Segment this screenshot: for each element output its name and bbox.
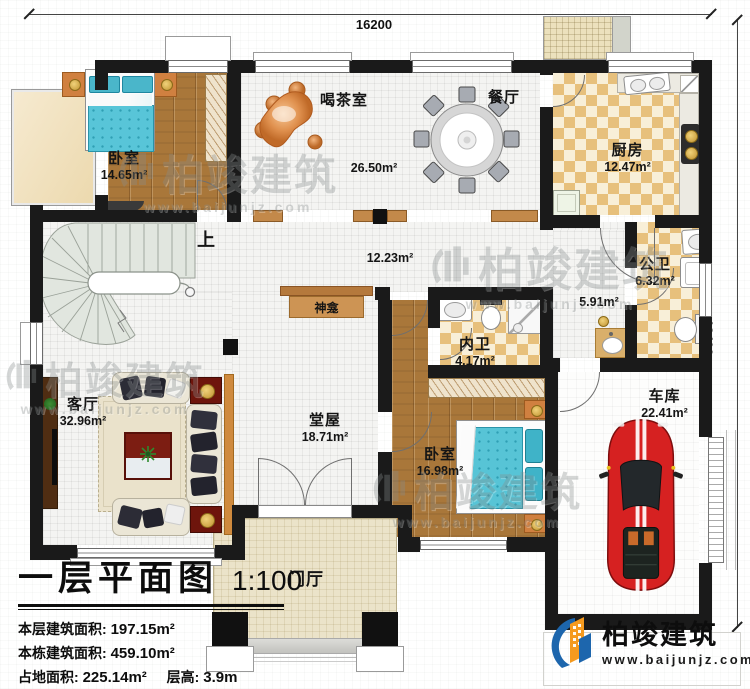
room-label-bedroom1: 卧室 14.65m² xyxy=(84,150,164,183)
right-dimension-line xyxy=(737,20,738,628)
stair-up-label: 上 xyxy=(192,230,220,252)
top-dimension-line xyxy=(28,14,712,15)
mattress xyxy=(88,105,154,152)
brand-logo-icon xyxy=(548,612,594,677)
stat-row: 本层建筑面积: 197.15m² xyxy=(18,619,328,639)
room-label-kitchen: 厨房 12.47m² xyxy=(585,142,670,175)
title-block: 一层平面图 1:100 本层建筑面积: 197.15m² 本栋建筑面积: 459… xyxy=(18,550,328,689)
room-label-tea: 喝茶室 xyxy=(300,92,388,110)
main-hall-floor xyxy=(232,292,378,505)
wall xyxy=(350,60,412,73)
chimney-hatch xyxy=(544,17,612,59)
area-label-tea: 26.50m² xyxy=(334,161,414,176)
floor-plan: 16200 13400 xyxy=(0,0,750,689)
wall xyxy=(30,365,43,560)
wall xyxy=(512,60,608,73)
wall xyxy=(375,287,390,300)
title-rule xyxy=(18,604,284,607)
wall xyxy=(428,287,553,300)
nightstand xyxy=(524,400,546,419)
stat-row: 占地面积: 225.14m² 层高: 3.9m xyxy=(18,667,328,687)
brand-name: 柏竣建筑 xyxy=(602,622,750,649)
door-leaf xyxy=(351,458,352,505)
wall xyxy=(428,300,440,328)
garage-door-track xyxy=(726,430,736,570)
wall xyxy=(378,300,392,412)
corner-cabinet xyxy=(680,75,699,93)
fridge-icon xyxy=(553,190,580,216)
brand-website: www.baijunjz.com xyxy=(602,652,750,667)
half-wall-cabinet xyxy=(387,210,407,222)
door-leaf xyxy=(197,180,198,210)
wall xyxy=(227,60,241,222)
room-label-main-hall: 堂屋 18.71m² xyxy=(283,412,367,445)
door-leaf xyxy=(258,458,259,505)
wall xyxy=(692,60,712,73)
window xyxy=(699,263,712,317)
car xyxy=(594,412,688,598)
nightstand xyxy=(62,72,85,97)
half-wall-cabinet xyxy=(491,210,538,222)
window xyxy=(412,60,512,73)
wall xyxy=(95,60,108,90)
tea-table xyxy=(240,78,330,158)
room-label-inner-bath: 内卫 4.17m² xyxy=(440,336,510,369)
column xyxy=(373,209,387,224)
room-label-dining: 餐厅 xyxy=(470,89,538,107)
top-dimension-label: 16200 xyxy=(334,17,414,32)
room-label-public-bath: 公卫 6.32m² xyxy=(620,256,690,289)
staircase xyxy=(40,222,200,347)
title-rule xyxy=(18,609,284,610)
wall xyxy=(378,452,392,505)
wall xyxy=(545,372,558,614)
garage-door xyxy=(708,437,724,563)
wall xyxy=(507,537,545,552)
window xyxy=(30,322,43,365)
wall xyxy=(699,73,712,263)
nightstand xyxy=(524,514,546,533)
window xyxy=(168,60,228,73)
door-threshold xyxy=(258,505,352,518)
half-wall-cabinet xyxy=(353,210,373,222)
wall xyxy=(600,358,712,372)
room-label-bedroom2: 卧室 16.98m² xyxy=(398,446,482,479)
half-wall-cabinet xyxy=(253,210,283,222)
window xyxy=(608,60,692,73)
pillow xyxy=(525,429,543,463)
pillow xyxy=(122,76,153,93)
wardrobe xyxy=(205,74,227,162)
window xyxy=(255,60,350,73)
end-table xyxy=(190,377,222,404)
room-label-living: 客厅 32.96m² xyxy=(43,396,123,429)
plan-title: 一层平面图 xyxy=(18,550,218,601)
closet xyxy=(428,378,545,398)
wall xyxy=(30,205,43,322)
vanity-sink-icon xyxy=(595,328,626,358)
wall xyxy=(625,305,637,363)
area-label-corridor: 5.91m² xyxy=(560,295,638,310)
nightstand xyxy=(154,72,177,97)
wall xyxy=(540,215,600,228)
floor-drain-icon xyxy=(598,316,609,327)
end-table xyxy=(190,506,222,533)
toilet-icon xyxy=(477,295,505,332)
column xyxy=(223,339,238,355)
sofa xyxy=(112,372,190,404)
area-label-hallway: 12.23m² xyxy=(350,251,430,266)
room-label-garage: 车库 22.41m² xyxy=(622,388,707,421)
plan-scale: 1:100 xyxy=(232,565,302,597)
wall xyxy=(540,60,553,75)
sofa xyxy=(112,498,190,536)
wall xyxy=(352,505,412,518)
porch-column xyxy=(362,612,398,646)
shrine-label: 神龛 xyxy=(314,301,338,315)
shrine-table: 神龛 xyxy=(289,296,364,318)
sofa xyxy=(186,404,222,504)
pillow xyxy=(525,467,543,501)
shrine-table-top xyxy=(280,286,373,296)
wall xyxy=(540,107,553,230)
window xyxy=(420,540,507,550)
brand-logo: 柏竣建筑 www.baijunjz.com xyxy=(548,612,750,677)
window-box xyxy=(165,36,231,61)
wall xyxy=(30,210,197,222)
stove-icon xyxy=(681,124,700,164)
column-base xyxy=(356,646,404,672)
plan-stats: 本层建筑面积: 197.15m² 本栋建筑面积: 459.10m² 占地面积: … xyxy=(18,619,328,687)
bay-window xyxy=(12,90,95,205)
stat-row: 本栋建筑面积: 459.10m² xyxy=(18,643,328,663)
table-plant-icon xyxy=(138,444,158,464)
tv-icon xyxy=(52,429,57,485)
bed-sheet xyxy=(88,94,152,106)
